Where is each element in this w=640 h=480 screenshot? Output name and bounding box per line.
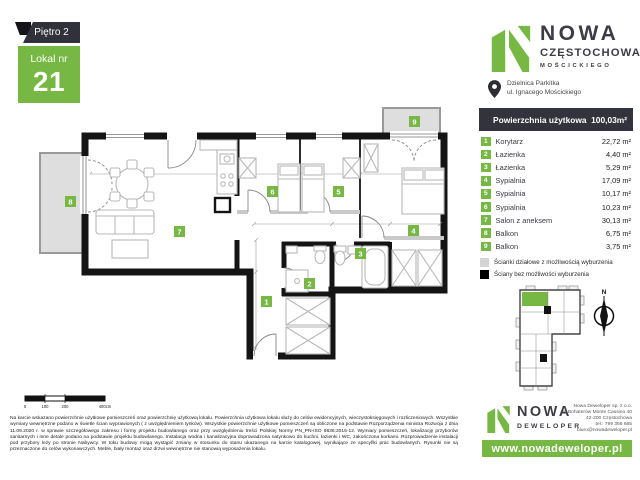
room-area: 3,75 m² (606, 242, 633, 251)
solid-wall-label: Ściany bez możliwości wyburzenia (494, 271, 589, 278)
sink (286, 246, 297, 253)
room-number-chip: 5 (481, 189, 491, 199)
floor-label: Piętro 2 (34, 27, 68, 38)
developer-contact: Nowa Deweloper sp. z o.o. Al.Bohaterów M… (540, 404, 632, 434)
svg-text:200: 200 (62, 404, 70, 409)
svg-text:N: N (602, 289, 607, 296)
room-number-chip: 9 (481, 242, 491, 252)
room-number-chip: 8 (481, 228, 491, 238)
area-table: Powierzchnia użytkowa 100,03m² 1Korytarz… (479, 108, 633, 253)
wall-legend: Ścianki działowe z możliwością wyburzeni… (479, 256, 613, 280)
coffee-table (112, 240, 148, 258)
balcony-8 (40, 153, 85, 253)
area-header-label: Powierzchnia użytkowa (479, 115, 587, 125)
unit-card-page: Piętro 2 Lokal nr 21 NOWA CZĘSTOCHOWA MO… (0, 0, 640, 480)
room-name: Balkon (496, 229, 519, 238)
svg-text:400cm: 400cm (99, 404, 112, 409)
room-name: Sypialnia (496, 203, 526, 212)
room-area: 22,72 m² (602, 137, 633, 146)
room-name: Korytarz (496, 137, 524, 146)
room-area: 10,23 m² (602, 203, 633, 212)
unit-number-label: Lokal nr (18, 53, 80, 65)
site-plan: N (500, 284, 632, 394)
area-header-value: 100,03m² (591, 115, 633, 125)
location-line1: Dzielnica Parkitka (507, 80, 581, 89)
room-name: Łazienka (496, 163, 526, 172)
svg-text:5: 5 (336, 188, 340, 197)
svg-text:2: 2 (307, 280, 311, 289)
stair-core (540, 354, 547, 362)
scale-bar: 0 100 200 400cm (24, 394, 112, 409)
map-pin-icon (488, 80, 501, 98)
svg-text:6: 6 (270, 188, 274, 197)
table-row: 1Korytarz22,72 m² (479, 135, 633, 148)
room-area: 4,40 m² (606, 150, 633, 159)
svg-text:9: 9 (412, 118, 416, 127)
table-row: 5Sypialnia10,17 m² (479, 187, 633, 200)
location-block: Dzielnica Parkitka ul. Ignacego Mościcki… (488, 80, 581, 98)
table-row: 4Sypialnia17,09 m² (479, 174, 633, 187)
table-row: 6Sypialnia10,23 m² (479, 200, 633, 213)
table-row: 8Balkon6,75 m² (479, 227, 633, 240)
svg-text:1: 1 (264, 298, 268, 307)
table-row: 9Balkon3,75 m² (479, 240, 633, 253)
room-number-chip: 1 (481, 137, 491, 147)
svg-text:100: 100 (42, 404, 50, 409)
brand-n-icon (486, 22, 534, 74)
sofa (96, 210, 154, 234)
table-row: 7Salon z aneksem30,13 m² (479, 214, 633, 227)
partition-wall-label: Ścianki działowe z możliwością wyburzeni… (494, 259, 613, 266)
partition-wall-swatch (480, 258, 489, 267)
svg-text:7: 7 (177, 228, 181, 237)
room-area: 10,17 m² (602, 189, 633, 198)
room-number-chip: 4 (481, 176, 491, 186)
unit-number-box: Lokal nr 21 (18, 46, 80, 103)
room-name: Sypialnia (496, 189, 526, 198)
legend-row-solid: Ściany bez możliwości wyburzenia (479, 268, 613, 280)
room-name: Balkon (496, 242, 519, 251)
room-area: 5,29 m² (606, 163, 633, 172)
room-name: Salon z aneksem (496, 216, 553, 225)
room-number-chip: 2 (481, 150, 491, 160)
room-name: Łazienka (496, 150, 526, 159)
svg-text:8: 8 (68, 198, 72, 207)
table-row: 3Łazienka5,29 m² (479, 161, 633, 174)
stair-core (544, 306, 551, 314)
website-bar: www.nowadeweloper.pl (482, 440, 632, 457)
room-area: 17,09 m² (602, 176, 633, 185)
disclaimer-text: Na karcie wskazano powierzchnie użytkowe… (10, 416, 458, 454)
room-name: Sypialnia (496, 176, 526, 185)
floor-plan: 1 2 3 4 5 6 7 8 9 0 100 200 400cm (10, 100, 460, 412)
brand-line1: NOWA (540, 23, 640, 44)
svg-text:0: 0 (24, 404, 27, 409)
room-number-chip: 6 (481, 202, 491, 212)
fridge (215, 198, 230, 212)
brand-line2: CZĘSTOCHOWA (540, 47, 640, 59)
unit-number: 21 (18, 66, 80, 98)
room-area: 6,75 m² (606, 229, 633, 238)
area-table-rows: 1Korytarz22,72 m² 2Łazienka4,40 m² 3Łazi… (479, 135, 633, 253)
legend-row-partition: Ścianki działowe z możliwością wyburzeni… (479, 256, 613, 268)
location-line2: ul. Ignacego Mościckiego (507, 89, 581, 98)
developer-n-icon (484, 404, 512, 434)
brand-wordmark: NOWA CZĘSTOCHOWA MOŚCICKIEGO (540, 23, 640, 69)
floor-badge: Piętro 2 (23, 22, 80, 43)
room-number-chip: 3 (481, 163, 491, 173)
website-url: www.nowadeweloper.pl (491, 443, 622, 455)
solid-wall-swatch (480, 270, 489, 279)
highlighted-unit (522, 292, 548, 306)
table-row: 2Łazienka4,40 m² (479, 148, 633, 161)
company-email: biuro@nowadeweloper.pl (540, 428, 632, 434)
compass-icon: N (595, 289, 614, 336)
brand-line3: MOŚCICKIEGO (540, 63, 640, 69)
area-table-header: Powierzchnia użytkowa 100,03m² (479, 108, 633, 131)
room-number-chip: 7 (481, 215, 491, 225)
svg-text:3: 3 (358, 250, 362, 259)
room-area: 30,13 m² (602, 216, 633, 225)
kitchen-cabinet (200, 140, 237, 150)
dining-table (116, 168, 148, 200)
